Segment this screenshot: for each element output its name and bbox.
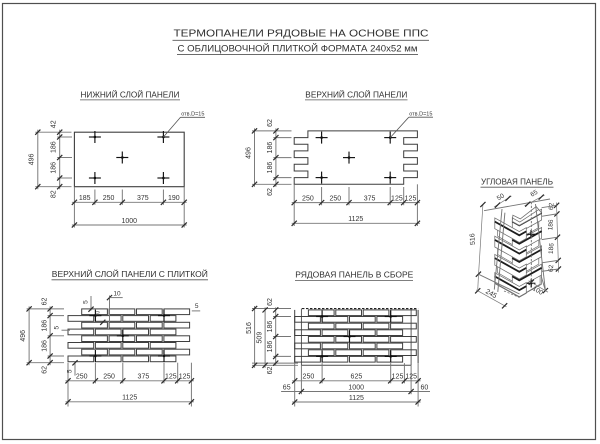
svg-text:186: 186 xyxy=(267,142,274,154)
svg-text:РЯДОВАЯ ПАНЕЛЬ В СБОРЕ: РЯДОВАЯ ПАНЕЛЬ В СБОРЕ xyxy=(295,271,413,280)
svg-text:62: 62 xyxy=(267,298,274,306)
svg-text:250: 250 xyxy=(103,195,115,202)
svg-text:509: 509 xyxy=(257,332,264,344)
svg-text:ВЕРХНИЙ СЛОЙ ПАНЕЛИ С ПЛИТ: ВЕРХНИЙ СЛОЙ ПАНЕЛИ С ПЛИТКОЙ xyxy=(52,270,208,279)
svg-text:УГЛОВАЯ ПАНЕЛЬ: УГЛОВАЯ ПАНЕЛЬ xyxy=(481,177,553,186)
svg-text:82: 82 xyxy=(51,190,58,198)
svg-text:62: 62 xyxy=(548,264,556,272)
svg-text:62: 62 xyxy=(267,367,274,375)
svg-text:НИЖНИЙ СЛОЙ ПАНЕЛИ: НИЖНИЙ СЛОЙ ПАНЕЛИ xyxy=(81,90,180,99)
svg-text:375: 375 xyxy=(137,195,149,202)
svg-text:190: 190 xyxy=(168,195,180,202)
svg-text:186: 186 xyxy=(267,341,274,353)
svg-text:250: 250 xyxy=(103,374,115,381)
svg-text:125: 125 xyxy=(405,374,417,381)
svg-text:42: 42 xyxy=(51,120,58,128)
svg-text:65: 65 xyxy=(283,384,291,391)
svg-text:отв.D=15: отв.D=15 xyxy=(181,112,204,118)
svg-text:516: 516 xyxy=(246,322,253,334)
svg-text:496: 496 xyxy=(245,147,252,159)
svg-text:625: 625 xyxy=(351,374,363,381)
svg-text:отв.D=15: отв.D=15 xyxy=(409,112,432,118)
svg-text:125: 125 xyxy=(179,374,191,381)
svg-text:375: 375 xyxy=(364,195,376,202)
svg-text:10: 10 xyxy=(113,291,121,298)
svg-text:60: 60 xyxy=(421,384,429,391)
svg-text:186: 186 xyxy=(267,162,274,174)
svg-text:186: 186 xyxy=(548,243,556,255)
svg-text:5: 5 xyxy=(53,326,60,330)
svg-text:ТЕРМОПАНЕЛИ РЯДОВЫЕ НА ОСНО: ТЕРМОПАНЕЛИ РЯДОВЫЕ НА ОСНОВЕ ППС xyxy=(174,28,429,40)
svg-text:516: 516 xyxy=(469,233,477,245)
svg-text:186: 186 xyxy=(547,219,555,231)
svg-text:125: 125 xyxy=(392,374,404,381)
svg-text:5: 5 xyxy=(195,303,199,310)
svg-text:1125: 1125 xyxy=(348,216,363,223)
svg-text:125: 125 xyxy=(165,374,177,381)
svg-text:1000: 1000 xyxy=(122,218,138,225)
svg-text:496: 496 xyxy=(29,153,36,165)
svg-text:250: 250 xyxy=(303,374,315,381)
svg-text:5: 5 xyxy=(82,300,89,304)
svg-text:1000: 1000 xyxy=(348,384,364,391)
svg-text:250: 250 xyxy=(76,374,88,381)
svg-text:5: 5 xyxy=(66,369,73,373)
svg-text:375: 375 xyxy=(138,374,150,381)
svg-text:250: 250 xyxy=(329,195,341,202)
svg-text:10: 10 xyxy=(96,311,102,317)
svg-text:186: 186 xyxy=(267,321,274,333)
svg-text:1125: 1125 xyxy=(349,395,364,402)
svg-text:186: 186 xyxy=(41,320,48,332)
svg-text:125: 125 xyxy=(405,195,417,202)
svg-text:125: 125 xyxy=(391,195,403,202)
svg-text:186: 186 xyxy=(51,162,58,174)
svg-text:186: 186 xyxy=(41,340,48,352)
svg-text:186: 186 xyxy=(51,141,58,153)
svg-text:ВЕРХНИЙ СЛОЙ ПАНЕЛИ: ВЕРХНИЙ СЛОЙ ПАНЕЛИ xyxy=(305,90,407,99)
svg-text:1125: 1125 xyxy=(122,395,137,402)
svg-text:185: 185 xyxy=(79,195,91,202)
svg-text:62: 62 xyxy=(41,298,48,306)
svg-text:62: 62 xyxy=(41,366,48,374)
svg-text:496: 496 xyxy=(20,330,27,342)
svg-text:62: 62 xyxy=(267,188,274,196)
svg-text:250: 250 xyxy=(302,195,314,202)
svg-text:С ОБЛИЦОВОЧНОЙ ПЛИТКОЙ ФОРМ: С ОБЛИЦОВОЧНОЙ ПЛИТКОЙ ФОРМАТА 240х52 мм xyxy=(178,42,418,53)
svg-text:62: 62 xyxy=(267,119,274,127)
